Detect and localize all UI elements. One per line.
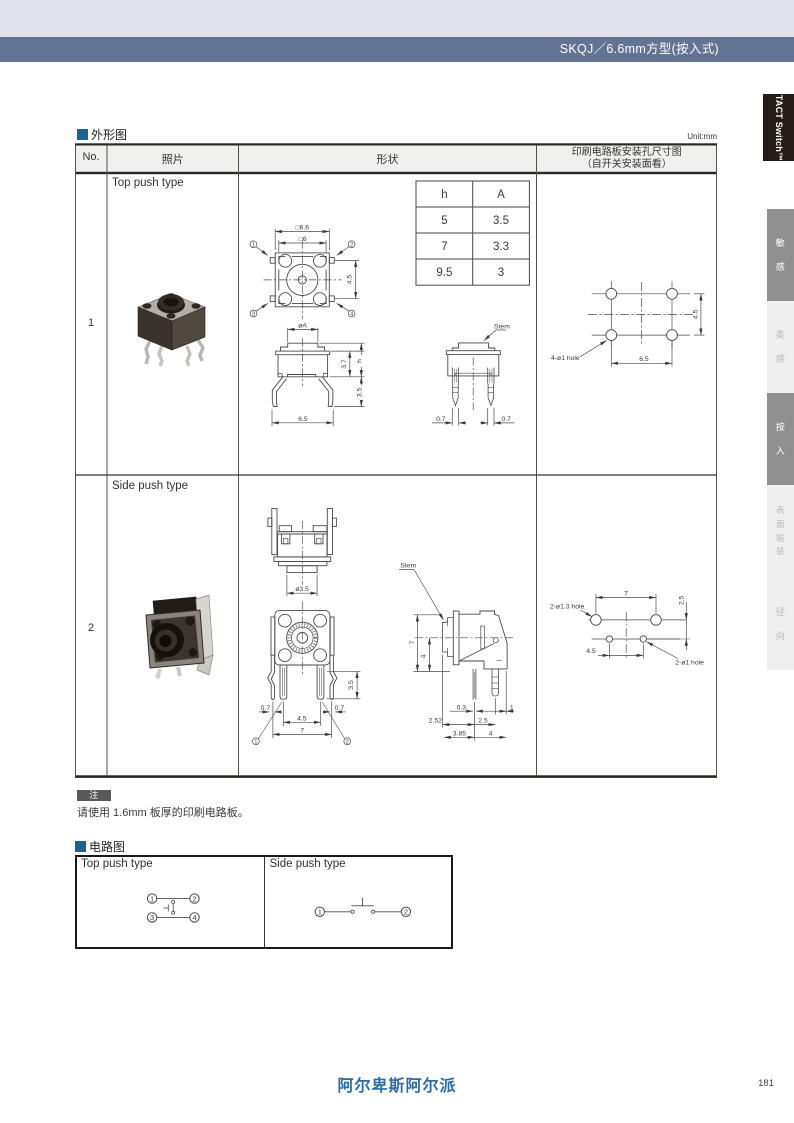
svg-text:1: 1 [254,739,257,745]
svg-text:h: h [357,359,364,363]
svg-text:2.5: 2.5 [478,718,488,725]
svg-text:2: 2 [346,739,349,745]
svg-text:4.5: 4.5 [692,310,699,320]
svg-text:1: 1 [252,242,255,248]
svg-text:3.3: 3.3 [493,241,509,253]
svg-text:0.3: 0.3 [457,704,467,711]
svg-text:h: h [441,189,447,201]
svg-text:7: 7 [441,241,447,253]
svg-text:□6: □6 [299,236,307,243]
svg-text:4.5: 4.5 [346,275,353,285]
svg-text:2: 2 [350,242,353,248]
svg-text:7: 7 [409,640,416,644]
svg-text:0.7: 0.7 [261,705,271,712]
svg-text:0.7: 0.7 [436,416,446,423]
svg-text:4.5: 4.5 [297,715,307,722]
svg-text:1: 1 [510,704,514,711]
svg-text:5: 5 [441,215,447,227]
svg-text:7: 7 [300,728,304,735]
svg-text:□6.6: □6.6 [296,224,310,231]
svg-text:6.5: 6.5 [639,356,649,363]
svg-text:3.5: 3.5 [357,388,364,398]
svg-text:4: 4 [489,730,493,737]
svg-text:3.5: 3.5 [493,215,509,227]
svg-text:ø3.5: ø3.5 [295,586,309,593]
svg-text:4: 4 [421,654,428,658]
svg-text:2-ø1 hole: 2-ø1 hole [675,660,704,667]
svg-text:3: 3 [498,267,504,279]
svg-text:4.5: 4.5 [586,648,596,655]
svg-text:4-ø1 hole: 4-ø1 hole [551,355,580,362]
svg-text:øA: øA [298,323,307,330]
svg-text:7: 7 [624,590,628,597]
svg-text:0.7: 0.7 [501,416,511,423]
svg-text:0.7: 0.7 [335,705,345,712]
svg-text:A: A [497,189,505,201]
svg-text:2.5: 2.5 [679,595,686,605]
svg-text:3.85: 3.85 [453,730,466,737]
svg-text:9.5: 9.5 [436,267,452,279]
svg-text:6.5: 6.5 [298,416,308,423]
svg-text:Stem: Stem [400,563,416,570]
svg-text:2-ø1.3 hole: 2-ø1.3 hole [550,604,585,611]
svg-text:3.7: 3.7 [341,359,348,369]
svg-text:Stem: Stem [494,324,510,331]
svg-text:2.52: 2.52 [429,718,442,725]
svg-text:3: 3 [252,312,255,318]
svg-text:3.5: 3.5 [348,680,355,690]
